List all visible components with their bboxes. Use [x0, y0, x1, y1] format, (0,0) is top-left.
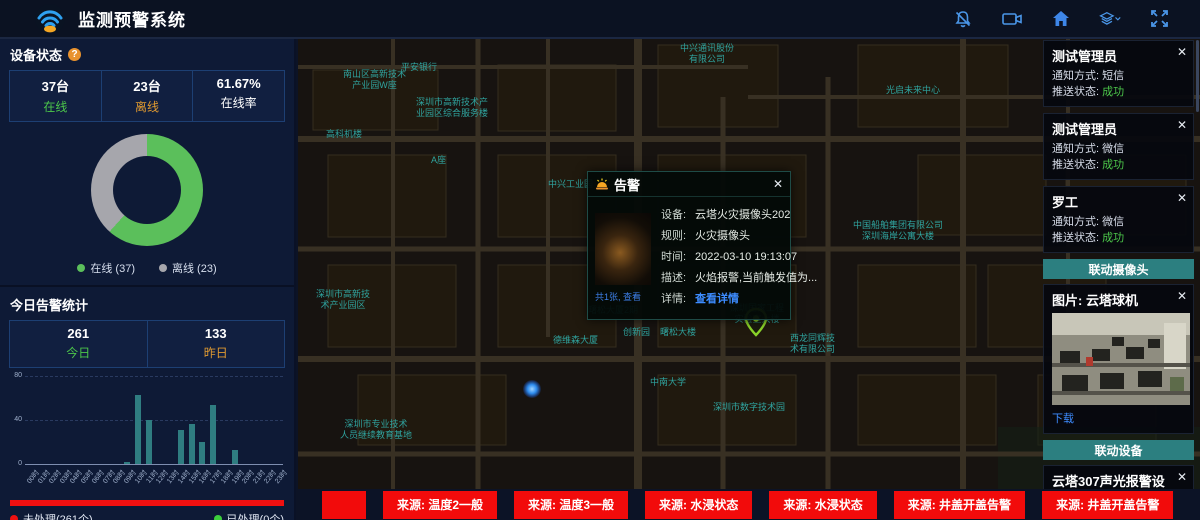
header: 监测预警系统 — [0, 0, 1200, 39]
stat-cell: 133昨日 — [147, 321, 285, 367]
close-icon[interactable] — [1177, 192, 1187, 204]
y-axis-tick: 0 — [9, 460, 22, 467]
alarm-field-value: 云塔火灾摄像头202 — [695, 205, 790, 226]
stat-value: 23台 — [102, 76, 193, 95]
card-row-label: 推送状态: — [1052, 86, 1102, 98]
alarm-field-label: 详情: — [661, 289, 695, 310]
bottom-alert-item[interactable] — [322, 491, 366, 519]
video-camera-icon[interactable] — [1001, 9, 1023, 29]
close-icon[interactable] — [1177, 290, 1187, 302]
today-alarm-title-text: 今日告警统计 — [10, 295, 88, 314]
y-axis-tick: 40 — [9, 416, 22, 423]
y-axis-tick: 80 — [9, 372, 22, 379]
unprocessed-dot-icon — [10, 515, 18, 520]
bar — [124, 462, 130, 464]
alarm-thumb-column: 共1张, 查看 — [595, 205, 655, 310]
camera-card: 图片: 云塔球机 — [1043, 284, 1194, 434]
alarm-popup-body: 共1张, 查看 设备:云塔火灾摄像头202规则:火灾摄像头时间:2022-03-… — [588, 197, 790, 319]
unprocessed-legend-item: 未处理(261个) — [10, 511, 93, 520]
alarm-icon — [595, 178, 609, 191]
stat-value: 61.67% — [193, 76, 284, 91]
alarm-field-label: 时间: — [661, 247, 695, 268]
alarm-field-label: 描述: — [661, 268, 695, 289]
stat-cell: 261今日 — [10, 321, 147, 367]
processed-dot-icon — [214, 515, 222, 520]
card-row-value: 微信 — [1102, 143, 1124, 155]
unprocessed-bar-fill — [10, 500, 284, 506]
bar — [189, 424, 195, 464]
stat-label: 昨日 — [148, 344, 285, 361]
view-details-link[interactable]: 查看详情 — [695, 289, 739, 310]
camera-card-title: 图片: 云塔球机 — [1052, 290, 1185, 309]
bottom-alert-item[interactable]: 来源: 井盖开盖告警 — [894, 491, 1025, 519]
stat-value: 261 — [10, 326, 147, 341]
card-row: 推送状态: 成功 — [1052, 157, 1185, 173]
grid-line — [25, 420, 283, 421]
alarm-field-label: 规则: — [661, 226, 695, 247]
device-status-title-text: 设备状态 — [10, 45, 62, 64]
stat-label: 在线 — [10, 98, 101, 115]
alarm-popup-title: 告警 — [614, 175, 773, 194]
alarm-thumb-caption[interactable]: 共1张, 查看 — [595, 290, 655, 303]
card-row: 通知方式: 短信 — [1052, 68, 1185, 84]
alarm-field-value: 火焰报警,当前触发值为... — [695, 268, 817, 289]
legend-dot-icon — [159, 264, 167, 272]
card-title: 测试管理员 — [1052, 46, 1185, 65]
device-status-stats: 37台在线23台离线61.67%在线率 — [9, 70, 285, 122]
map-marker-dot[interactable] — [523, 380, 541, 398]
right-notifications-panel: 测试管理员通知方式: 短信推送状态: 成功测试管理员通知方式: 微信推送状态: … — [1040, 37, 1200, 520]
processed-label: 已处理(0个) — [227, 511, 284, 520]
fullscreen-icon[interactable] — [1148, 9, 1170, 29]
card-row-value: 成功 — [1102, 159, 1124, 171]
linked-devices-header[interactable]: 联动设备 — [1043, 440, 1194, 460]
donut-ring — [91, 134, 203, 246]
today-alarm-title: 今日告警统计 — [9, 287, 285, 320]
home-icon[interactable] — [1050, 9, 1072, 29]
close-icon[interactable] — [1177, 119, 1187, 131]
alarm-field-value: 火灾摄像头 — [695, 226, 750, 247]
close-icon[interactable] — [773, 178, 783, 190]
today-alarm-stats: 261今日133昨日 — [9, 320, 285, 368]
app-logo-icon — [34, 3, 66, 35]
grid-line — [25, 464, 283, 465]
stat-cell: 23台离线 — [101, 71, 193, 121]
card-row: 通知方式: 微信 — [1052, 214, 1185, 230]
alarm-field-row: 规则:火灾摄像头 — [661, 226, 817, 247]
card-row-label: 推送状态: — [1052, 232, 1102, 244]
bar — [210, 405, 216, 464]
scrollbar[interactable] — [1196, 40, 1199, 112]
card-row-label: 通知方式: — [1052, 216, 1102, 228]
card-row-label: 通知方式: — [1052, 70, 1102, 82]
header-toolbar — [952, 9, 1170, 29]
processed-progress-bar — [10, 500, 284, 506]
alarm-popup: 告警 共1张, 查看 设备:云塔火灾摄像头202规则:火灾摄像头时间:2022-… — [587, 171, 791, 320]
layers-icon[interactable] — [1099, 9, 1121, 29]
bar — [199, 442, 205, 464]
help-icon[interactable] — [68, 48, 81, 61]
stat-cell: 61.67%在线率 — [192, 71, 284, 121]
processed-legend: 未处理(261个) 已处理(0个) — [9, 511, 285, 520]
stat-value: 133 — [148, 326, 285, 341]
stat-label: 在线率 — [193, 94, 284, 111]
linked-cameras-header[interactable]: 联动摄像头 — [1043, 259, 1194, 279]
card-row: 推送状态: 成功 — [1052, 84, 1185, 100]
notification-card: 测试管理员通知方式: 短信推送状态: 成功 — [1043, 40, 1194, 107]
alarm-snapshot-image[interactable] — [595, 213, 651, 285]
card-title: 测试管理员 — [1052, 119, 1185, 138]
bottom-alert-strip: 来源: 温度2一般来源: 温度3一般来源: 水浸状态来源: 水浸状态来源: 井盖… — [298, 489, 1200, 520]
alarm-field-row: 设备:云塔火灾摄像头202 — [661, 205, 817, 226]
bottom-alert-item[interactable]: 来源: 温度3一般 — [514, 491, 628, 519]
bar — [178, 430, 184, 464]
legend-item[interactable]: 在线 (37) — [77, 260, 135, 276]
device-donut-chart — [9, 134, 285, 256]
card-row-value: 短信 — [1102, 70, 1124, 82]
card-row-value: 成功 — [1102, 86, 1124, 98]
card-row-value: 微信 — [1102, 216, 1124, 228]
card-row-value: 成功 — [1102, 232, 1124, 244]
notification-card: 测试管理员通知方式: 微信推送状态: 成功 — [1043, 113, 1194, 180]
bar — [146, 420, 152, 464]
stat-value: 37台 — [10, 76, 101, 95]
bar — [135, 395, 141, 464]
bottom-alert-item[interactable]: 来源: 水浸状态 — [645, 491, 752, 519]
notification-card: 罗工通知方式: 微信推送状态: 成功 — [1043, 186, 1194, 253]
notifications-off-icon[interactable] — [952, 9, 974, 29]
alarm-field-row: 描述:火焰报警,当前触发值为... — [661, 268, 817, 289]
stat-label: 今日 — [10, 344, 147, 361]
alarm-field-label: 设备: — [661, 205, 695, 226]
card-row: 推送状态: 成功 — [1052, 230, 1185, 246]
legend-label: 在线 (37) — [90, 260, 135, 276]
close-icon[interactable] — [1177, 471, 1187, 483]
hourly-alarm-bar-chart: 0408000时01时02时03时04时05时06时07时08时09时10时11… — [9, 370, 285, 490]
app-root: 监测预警系统 — [0, 0, 1200, 520]
download-link[interactable]: 下载 — [1052, 410, 1074, 426]
stat-cell: 37台在线 — [10, 71, 101, 121]
legend-item[interactable]: 离线 (23) — [159, 260, 217, 276]
card-title: 罗工 — [1052, 192, 1185, 211]
card-row-label: 推送状态: — [1052, 159, 1102, 171]
card-row: 通知方式: 微信 — [1052, 141, 1185, 157]
donut-legend: 在线 (37)离线 (23) — [9, 260, 285, 276]
bottom-alert-item[interactable]: 来源: 井盖开盖告警 — [1042, 491, 1173, 519]
alarm-field-value: 2022-03-10 19:13:07 — [695, 247, 797, 268]
grid-line — [25, 376, 283, 377]
device-status-title: 设备状态 — [9, 37, 285, 70]
bottom-alert-item[interactable]: 来源: 温度2一般 — [383, 491, 497, 519]
alarm-field-row: 详情:查看详情 — [661, 289, 817, 310]
legend-label: 离线 (23) — [172, 260, 217, 276]
stat-label: 离线 — [102, 98, 193, 115]
camera-snapshot-image[interactable] — [1052, 313, 1190, 405]
processed-legend-item: 已处理(0个) — [214, 511, 284, 520]
page-title: 监测预警系统 — [78, 6, 186, 31]
close-icon[interactable] — [1177, 46, 1187, 58]
alarm-field-row: 时间:2022-03-10 19:13:07 — [661, 247, 817, 268]
card-row-label: 通知方式: — [1052, 143, 1102, 155]
bottom-alert-item[interactable]: 来源: 水浸状态 — [769, 491, 876, 519]
alarm-fields: 设备:云塔火灾摄像头202规则:火灾摄像头时间:2022-03-10 19:13… — [661, 205, 817, 310]
unprocessed-label: 未处理(261个) — [23, 511, 93, 520]
legend-dot-icon — [77, 264, 85, 272]
alarm-popup-header: 告警 — [588, 172, 790, 197]
bar — [232, 450, 238, 464]
notification-list: 测试管理员通知方式: 短信推送状态: 成功测试管理员通知方式: 微信推送状态: … — [1043, 40, 1194, 253]
left-stats-panel: 设备状态 37台在线23台离线61.67%在线率 在线 (37)离线 (23) … — [0, 37, 296, 520]
